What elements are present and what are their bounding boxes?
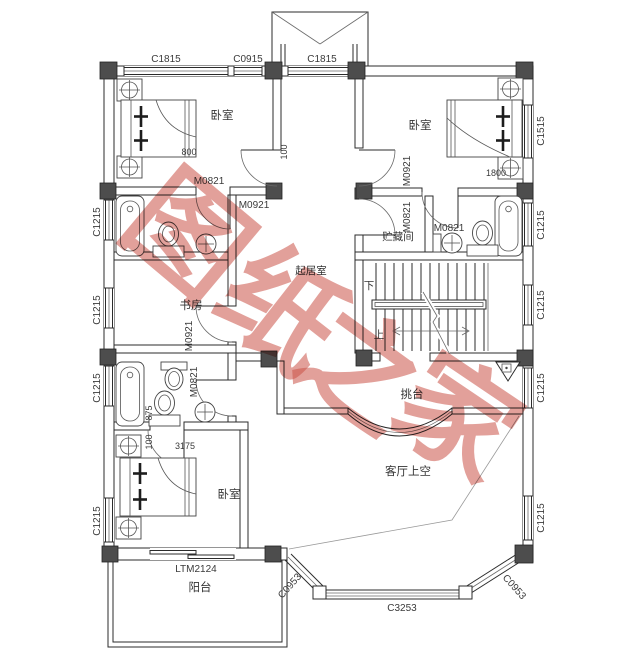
window-right-2: [523, 203, 533, 246]
window-right-3: [523, 285, 533, 325]
label-storage-room: 贮藏间: [382, 230, 414, 243]
label-window-bay-center: C3253: [387, 603, 417, 614]
dim-bath-lower-left-b: 100: [144, 434, 154, 449]
label-window-bay-left: C0953: [276, 571, 304, 601]
label-window-top-entry: C1815: [307, 54, 337, 65]
window-right-1: [523, 105, 533, 158]
label-door-bath-lower-left: M0821: [189, 366, 200, 397]
balcony-sliding-door: [150, 548, 236, 560]
watermark: 图 纸 之 家: [98, 145, 544, 508]
bed-top-right: [447, 78, 523, 179]
label-window-left-3: C1215: [92, 373, 103, 403]
label-balcony: 阳台: [189, 580, 212, 594]
window-top-left: [124, 66, 228, 76]
floorplan-page: C1815 C0915 C1815 C1215 C1215 C1215 C121…: [0, 0, 640, 660]
label-door-storage: M0821: [402, 201, 413, 232]
window-left-3: [104, 366, 114, 406]
sink-right: [433, 233, 462, 253]
label-door-bath-right: M0821: [434, 223, 465, 234]
sink-lower-left: [195, 402, 215, 422]
label-window-left-2: C1215: [92, 295, 103, 325]
label-bedroom-top-right: 卧室: [409, 118, 432, 132]
window-top-entry: [288, 66, 348, 76]
window-right-5: [523, 496, 533, 540]
door-bedroom-top-left: [241, 150, 277, 186]
dim-hall-top: 100: [279, 144, 289, 159]
label-window-right-3: C1215: [536, 290, 547, 320]
window-left-2: [104, 288, 114, 328]
floorplan-drawing: C1815 C0915 C1815 C1215 C1215 C1215 C121…: [0, 0, 640, 660]
door-storage: [359, 199, 395, 235]
label-balcony-door: LTM2124: [175, 564, 217, 575]
label-window-left-4: C1215: [92, 506, 103, 536]
window-top-middle: [234, 66, 262, 76]
label-window-right-1: C1515: [536, 116, 547, 146]
bidet-lower-left: [161, 362, 187, 390]
label-window-top-middle: C0915: [233, 54, 263, 65]
dim-bath-lower-left-a: 875: [144, 405, 154, 420]
dim-bedroom-bottom-width: 3175: [175, 441, 195, 451]
label-window-right-5: C1215: [536, 503, 547, 533]
toilet-right: [467, 221, 498, 256]
bathtub-right: [495, 196, 522, 256]
label-window-top-left: C1815: [151, 54, 181, 65]
label-window-right-2: C1215: [536, 210, 547, 240]
dim-bed-top-right: 1800: [486, 168, 506, 178]
bay-window-walls: [285, 554, 523, 599]
bathtub-lower-left: [116, 362, 144, 426]
label-bedroom-bottom-left: 卧室: [218, 487, 241, 501]
window-left-4: [104, 498, 114, 542]
label-window-bay-right: C0953: [500, 573, 528, 603]
label-door-bedroom-top-right: M0921: [402, 155, 413, 186]
label-window-left-1: C1215: [92, 207, 103, 237]
door-bedroom-top-right: [359, 150, 395, 186]
label-bedroom-top-left: 卧室: [211, 108, 234, 122]
